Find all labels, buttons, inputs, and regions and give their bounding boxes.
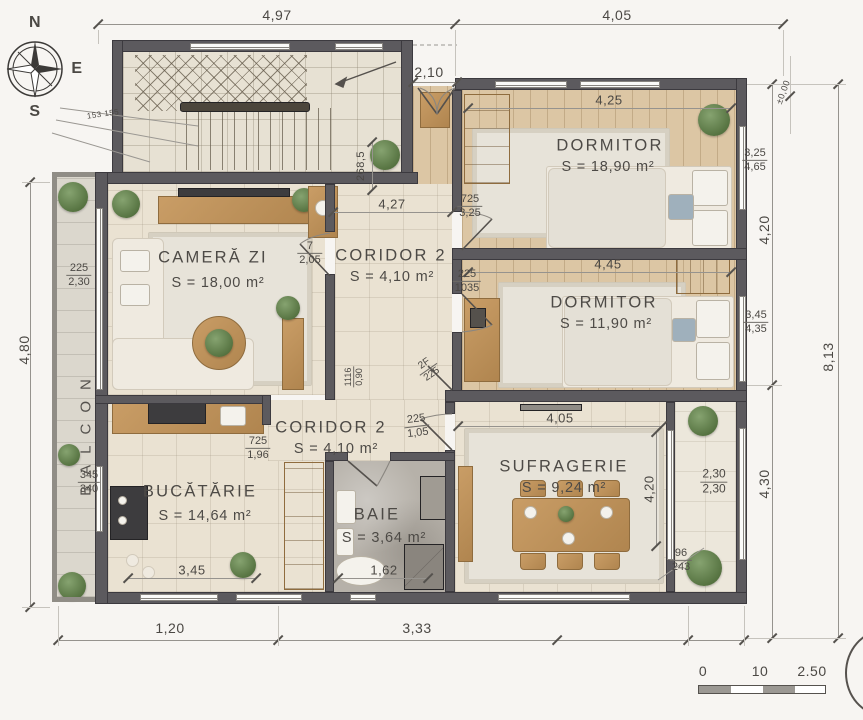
balcony-railing (52, 172, 95, 177)
tv (178, 188, 290, 197)
scale-bar-start: 0 (699, 663, 707, 679)
balcony-door-window (96, 208, 103, 390)
living-room-area: S = 18,00 m² (171, 275, 264, 291)
table-centerpiece (558, 506, 574, 522)
window (140, 594, 218, 601)
dining-label: SUFRAGERIE (499, 458, 628, 477)
compass-north-label: N (29, 14, 41, 32)
wall (325, 184, 335, 232)
wall (401, 40, 413, 184)
sideboard (458, 466, 473, 562)
dimension-line (338, 578, 428, 579)
pantry-cabinet (284, 462, 324, 590)
plant (370, 140, 400, 170)
dim-dining-window: 2,302,30 (700, 468, 727, 497)
balcony-railing (52, 172, 57, 602)
dim-balcony-window: 2252,30 (66, 262, 91, 288)
plant (276, 296, 300, 320)
bed-duvet (548, 168, 666, 248)
plant (112, 190, 140, 218)
dimension-line (468, 272, 731, 273)
corridor-lower-area: S = 4,10 m² (294, 441, 378, 457)
bedroom1-label: DORMITOR (556, 137, 663, 156)
bed-pillow-accent (672, 318, 696, 342)
wall (325, 274, 335, 400)
dim-bottom-mid: 3,33 (402, 620, 431, 636)
dim-left-height: 4,80 (16, 335, 32, 364)
stamp-circle (845, 630, 863, 716)
bedroom2-label: DORMITOR (550, 294, 657, 313)
desk-items (470, 308, 486, 328)
scale-bar-end: 2.50 (797, 663, 826, 679)
media-cabinet (282, 318, 304, 390)
balcony-railing (52, 597, 95, 602)
wall (445, 390, 747, 402)
dining-chair (520, 553, 546, 570)
dim-hall-width: 4,27 (378, 197, 405, 212)
compass-rose (0, 31, 74, 107)
wall (445, 450, 455, 592)
bedroom2-area: S = 11,90 m² (560, 316, 652, 332)
dim-bedroom2-window: 3,454,35 (743, 309, 768, 335)
dim-right-total: 8,13 (820, 342, 836, 371)
scale-bar-segment (699, 686, 731, 693)
wall (95, 172, 418, 184)
compass-star (7, 41, 63, 97)
plant (230, 552, 256, 578)
dim-dining-width: 4,05 (546, 411, 573, 426)
shelf-unit (676, 258, 730, 294)
plant (688, 406, 718, 436)
oven-dial (118, 496, 127, 505)
bed-pillow (696, 342, 730, 380)
dim-bottom-left: 1,20 (155, 620, 184, 636)
dim-right-lower: 4,30 (756, 469, 772, 498)
bathroom-label: BAIE (354, 506, 400, 525)
bed-pillow-accent (668, 194, 694, 220)
dim-living-door: 72,05 (297, 240, 322, 266)
window (350, 594, 376, 601)
entry-cabinet (420, 92, 450, 128)
dimension-line (458, 426, 662, 427)
window (236, 594, 302, 601)
corridor-lower-label: CORIDOR 2 (275, 419, 386, 438)
dim-entry: 2,10 (414, 64, 443, 80)
plate (562, 532, 575, 545)
stool (126, 554, 139, 567)
kitchen-area: S = 14,64 m² (158, 508, 251, 524)
dimension-line (772, 385, 773, 638)
bath-shelves (420, 476, 446, 520)
wall (95, 395, 268, 404)
corridor-upper-area: S = 4,10 m² (350, 269, 434, 285)
wall (325, 461, 334, 592)
stair-treads (186, 108, 336, 170)
scale-bar-mid: 10 (752, 663, 769, 679)
dim-stair-depth: 268,5 (355, 151, 367, 181)
wall (452, 332, 462, 392)
dim-kitchen-width: 3,45 (178, 563, 205, 578)
dim-bath-width: 1,62 (370, 563, 397, 578)
scale-bar (698, 685, 826, 694)
dim-dining-door: 2251,05 (403, 411, 431, 440)
dim-right-upper: 4,20 (756, 215, 772, 244)
wall (262, 395, 271, 425)
window (335, 43, 383, 50)
dim-bedroom1-window: 3,254,65 (742, 147, 767, 173)
interior-glazing (667, 430, 674, 560)
bed-pillow (692, 210, 728, 246)
kitchen-sink (220, 406, 246, 426)
plant (205, 329, 233, 357)
dim-living-passage: 11160,90 (343, 366, 365, 389)
window (498, 594, 630, 601)
dimension-line (128, 578, 256, 579)
sofa-pillow (120, 284, 150, 306)
bed-pillow (692, 170, 728, 206)
oven-dial (118, 516, 127, 525)
stair-handrail (180, 102, 310, 112)
dim-top-right: 4,05 (602, 7, 631, 23)
dim-kitchen-opening: 7251,96 (245, 435, 270, 461)
dining-chair (557, 553, 583, 570)
compass-east-label: E (71, 60, 82, 78)
compass-south-label: S (29, 103, 40, 121)
window (495, 81, 567, 88)
plant (58, 572, 86, 600)
dim-dining-height: 4,20 (642, 475, 657, 502)
dim-bedroom2-width: 4,45 (594, 257, 621, 272)
dim-bedroom1-width: 4,25 (595, 93, 622, 108)
dimension-line (30, 182, 31, 607)
plate (524, 506, 537, 519)
dimension-line (98, 24, 783, 25)
scale-bar-segment (763, 686, 795, 693)
bathroom-area: S = 3,64 m² (342, 530, 426, 546)
dimension-line (413, 82, 457, 83)
dimension-line (58, 640, 744, 641)
dimension-line (772, 84, 773, 385)
plant (58, 182, 88, 212)
dining-area: S = 9,24 m² (522, 480, 606, 496)
dim-bedroom1-door: 7253,25 (457, 193, 482, 219)
corridor-upper-label: CORIDOR 2 (335, 247, 446, 266)
bedroom1-area: S = 18,90 m² (561, 159, 654, 175)
window (580, 81, 660, 88)
dim-niche-window: 96243 (670, 547, 692, 573)
dimension-line (838, 84, 839, 638)
window (739, 428, 746, 560)
plate (600, 506, 613, 519)
wall (390, 452, 455, 461)
sofa-pillow (120, 250, 150, 272)
dim-bedroom2-door: 2251035 (453, 268, 481, 294)
cooktop-hood (148, 402, 206, 424)
floor-plan-sheet: N E S CAMERĂ ZI S = 18,00 m² CORIDOR 2 S… (0, 0, 863, 720)
dining-chair (594, 553, 620, 570)
window (190, 43, 290, 50)
living-room-label: CAMERĂ ZI (158, 249, 268, 268)
dimension-line (468, 108, 731, 109)
kitchen-label: BUCĂTĂRIE (143, 483, 257, 502)
wall (445, 402, 455, 414)
dimension-line (333, 212, 452, 213)
dim-top-left: 4,97 (262, 7, 291, 23)
bed-pillow (696, 300, 730, 338)
dim-entry-side: 345340 (78, 469, 100, 495)
dimension-line (372, 142, 373, 190)
